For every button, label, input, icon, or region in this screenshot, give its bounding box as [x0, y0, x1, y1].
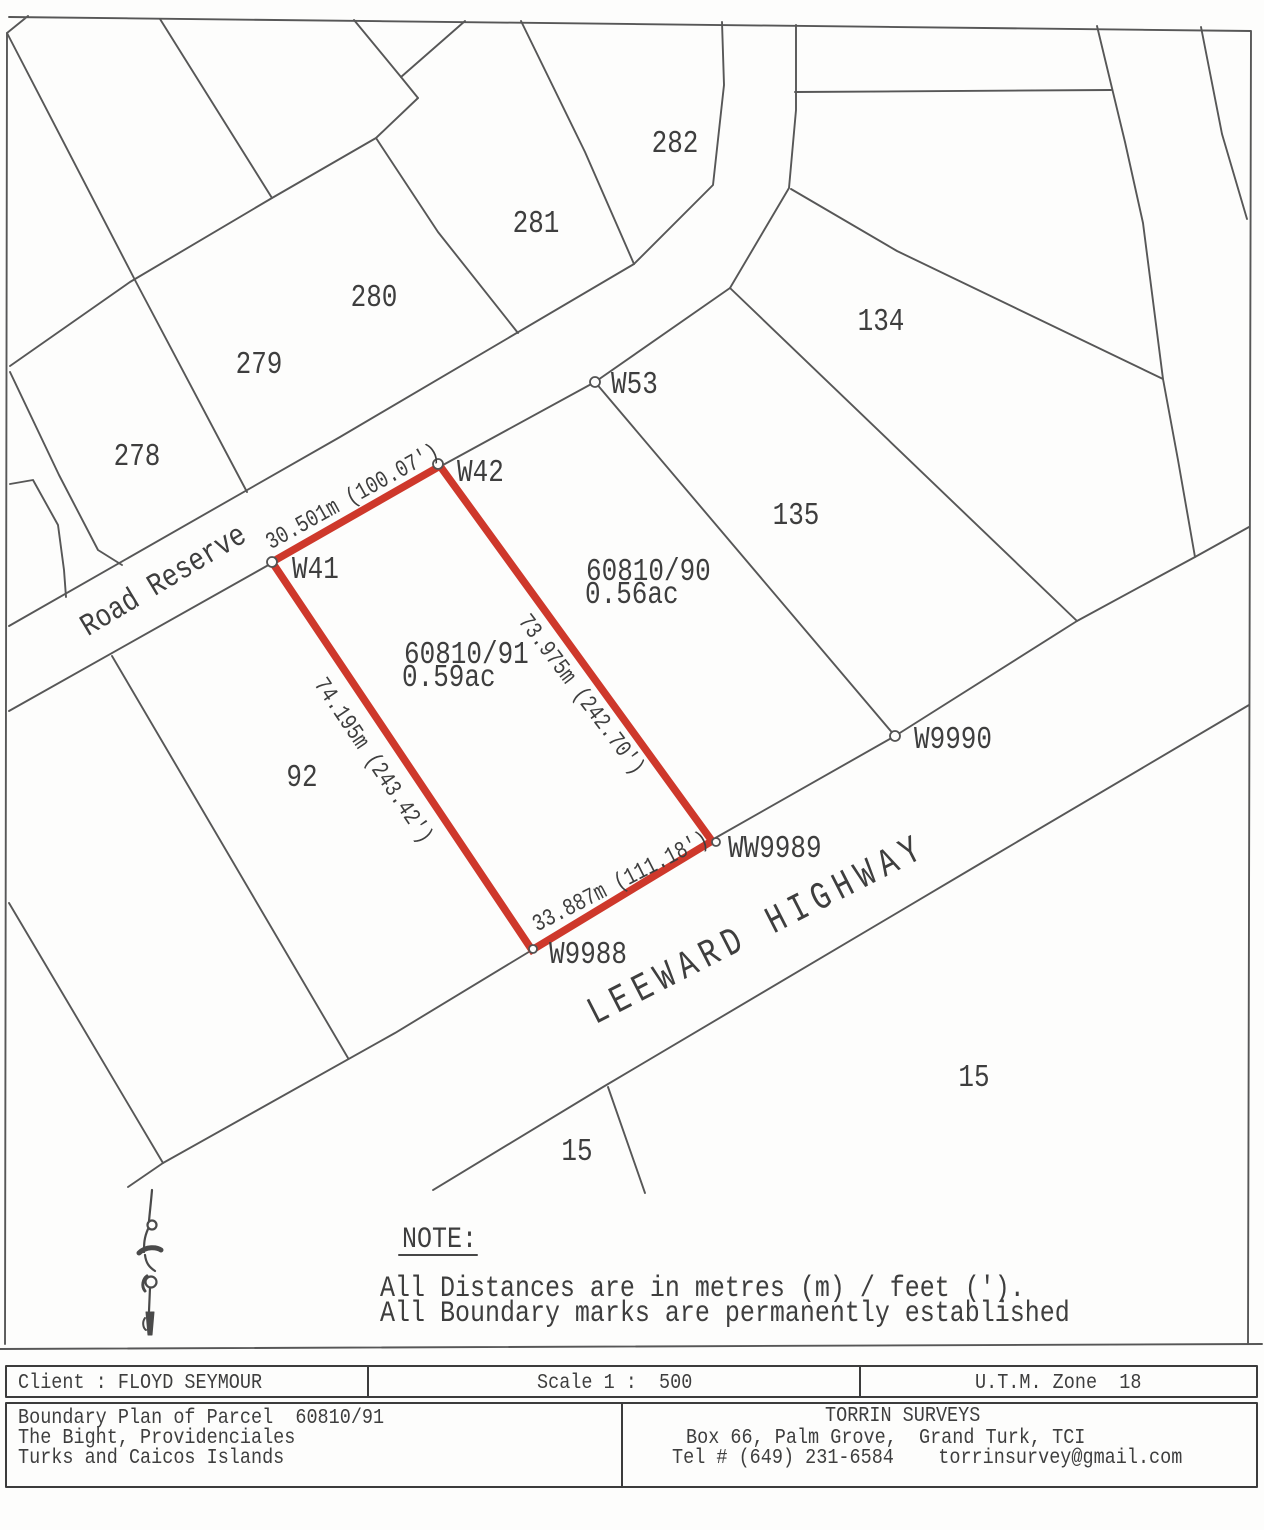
svg-text:0.59ac: 0.59ac	[402, 660, 496, 696]
svg-text:All Boundary marks are permane: All Boundary marks are permanently estab…	[380, 1297, 1070, 1330]
svg-text:W53: W53	[611, 367, 658, 403]
svg-text:33.887m (111.18'): 33.887m (111.18')	[529, 827, 714, 939]
svg-text:92: 92	[286, 760, 317, 796]
svg-text:WW9989: WW9989	[728, 831, 822, 867]
svg-text:W9988: W9988	[549, 937, 627, 973]
svg-text:Client : FLOYD SEYMOUR: Client : FLOYD SEYMOUR	[18, 1370, 262, 1395]
svg-text:15: 15	[561, 1134, 592, 1170]
svg-text:279: 279	[236, 347, 283, 383]
svg-text:30.501m (100.07'): 30.501m (100.07')	[262, 439, 444, 556]
svg-text:0.56ac: 0.56ac	[585, 577, 679, 613]
svg-text:Tel # (649) 231-6584 torrin: Tel # (649) 231-6584 torrinsurvey@gmail.…	[672, 1445, 1182, 1470]
svg-text:74.195m (243.42'): 74.195m (243.42')	[307, 673, 437, 848]
svg-text:15: 15	[958, 1060, 989, 1096]
svg-text:282: 282	[652, 126, 699, 162]
svg-text:Scale 1 : 500: Scale 1 : 500	[537, 1370, 692, 1395]
svg-text:U.T.M. Zone 18: U.T.M. Zone 18	[975, 1370, 1141, 1395]
svg-text:NOTE:: NOTE:	[402, 1223, 477, 1256]
svg-text:Turks and Caicos Islands: Turks and Caicos Islands	[18, 1445, 284, 1470]
svg-text:278: 278	[114, 439, 161, 475]
svg-text:W9990: W9990	[914, 722, 992, 758]
svg-text:135: 135	[773, 498, 820, 534]
svg-text:134: 134	[858, 304, 905, 340]
svg-text:280: 280	[351, 280, 398, 316]
svg-text:TORRIN SURVEYS: TORRIN SURVEYS	[825, 1403, 980, 1428]
svg-text:281: 281	[513, 206, 560, 242]
svg-text:W42: W42	[457, 455, 504, 491]
svg-text:73.975m (242.70'): 73.975m (242.70')	[512, 610, 650, 781]
svg-text:W41: W41	[292, 552, 339, 588]
